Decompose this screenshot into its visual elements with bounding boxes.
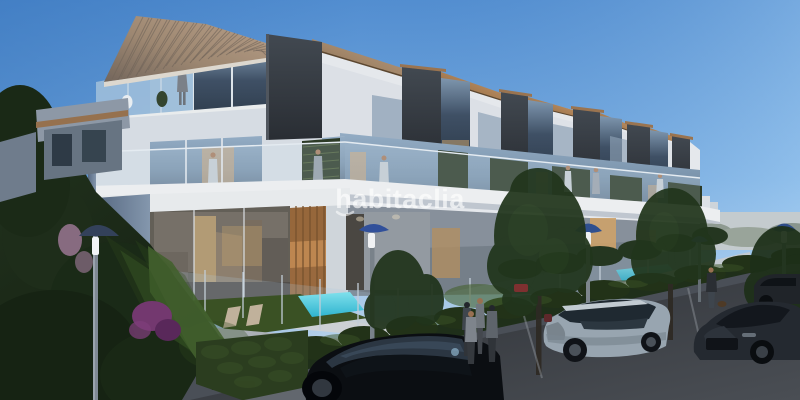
svg-text:habitaclia: habitaclia <box>335 184 465 214</box>
